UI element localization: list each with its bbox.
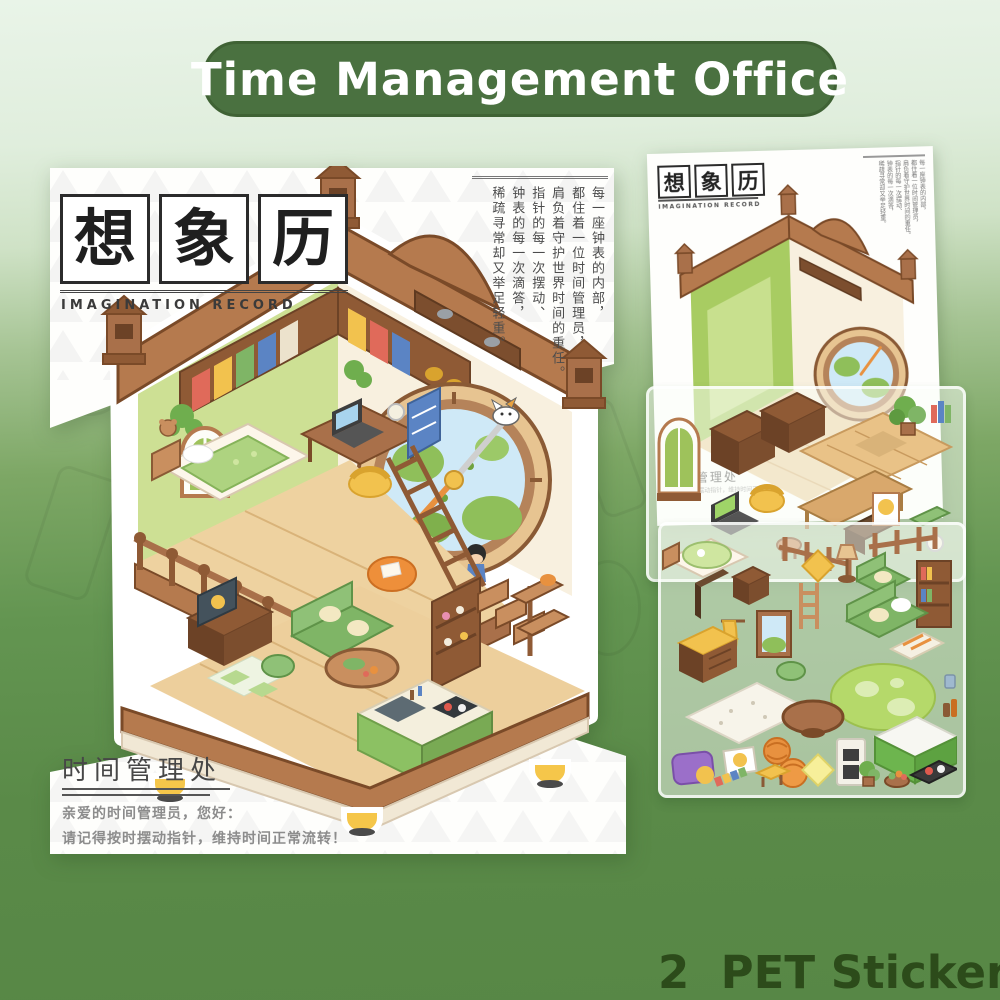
story-text: 每一座钟表的内部， 都住着一位时间管理员， 肩负着守护世界时间的重任。 指针的每… bbox=[472, 176, 608, 440]
story-column: 都住着一位时间管理员， bbox=[568, 186, 583, 440]
title-rule bbox=[60, 290, 348, 293]
mini-title: 想 象 历 bbox=[657, 163, 765, 199]
painting-sticker bbox=[873, 493, 899, 525]
ottoman-sticker bbox=[777, 662, 805, 680]
coffee-table bbox=[326, 649, 398, 687]
pet-sticker-sheet-2 bbox=[658, 522, 966, 798]
title-char-box: 想 bbox=[60, 194, 150, 284]
office-underline bbox=[62, 794, 210, 796]
story-column: 每一座钟表的内部， bbox=[588, 186, 603, 440]
title-char-box: 历 bbox=[258, 194, 348, 284]
story-column: 肩负着守护世界时间的重任。 bbox=[548, 186, 563, 440]
bookcase-sticker bbox=[917, 561, 951, 627]
office-label: 时间管理处 bbox=[62, 750, 222, 787]
window-sticker bbox=[657, 419, 701, 501]
product-info-line: 2 PET Stickers bbox=[658, 942, 1000, 1000]
bed-sticker bbox=[663, 539, 747, 577]
office-underline bbox=[62, 788, 230, 790]
title-char-box: 象 bbox=[159, 194, 249, 284]
ladder-sticker bbox=[801, 583, 817, 629]
greeting-text: 亲爱的时间管理员，您好： 请记得按时摆动指针，维持时间正常流转！ bbox=[62, 802, 347, 851]
cushion-sticker bbox=[802, 754, 833, 785]
scene-sticker: 想 象 历 IMAGINATION RECORD 每一座钟表的内部， 都住着一位… bbox=[40, 166, 644, 858]
bottles-sticker bbox=[943, 675, 957, 717]
armchair-sticker bbox=[750, 487, 784, 512]
product-info: 2 PET Stickers 1 Scene Sticker 170*200mm bbox=[658, 818, 1000, 1000]
poster-subtitle: IMAGINATION RECORD bbox=[61, 298, 361, 313]
bean-bag bbox=[368, 557, 416, 591]
mini-story-text: 每一座钟表的内部， 都住着一位时间管理员， 肩负着守护世界时间的重任。 指针的每… bbox=[863, 154, 929, 291]
story-column: 钟表的每一次滴答， bbox=[508, 186, 523, 440]
product-photo-stage: Time Management Office bbox=[0, 0, 1000, 1000]
lounger-sticker bbox=[891, 633, 943, 659]
fridge-sticker bbox=[837, 739, 865, 785]
banner-label: Time Management Office bbox=[191, 53, 849, 106]
picture-frame-sticker bbox=[757, 611, 791, 657]
story-column: 指针的每一次摆动、 bbox=[528, 186, 543, 440]
round-table-sticker bbox=[783, 701, 843, 738]
drawer-desk-sticker bbox=[679, 627, 737, 683]
nightstand-sticker bbox=[733, 567, 769, 605]
banner: Time Management Office bbox=[203, 41, 837, 117]
story-column: 稀疏寻常却又举足轻重。 bbox=[488, 186, 503, 440]
desk-chair bbox=[349, 469, 391, 497]
green-sofa-sticker bbox=[847, 581, 927, 637]
poster-title: 想 象 历 bbox=[60, 194, 348, 284]
suitcase-sticker bbox=[672, 751, 715, 785]
books-sticker bbox=[931, 401, 951, 423]
